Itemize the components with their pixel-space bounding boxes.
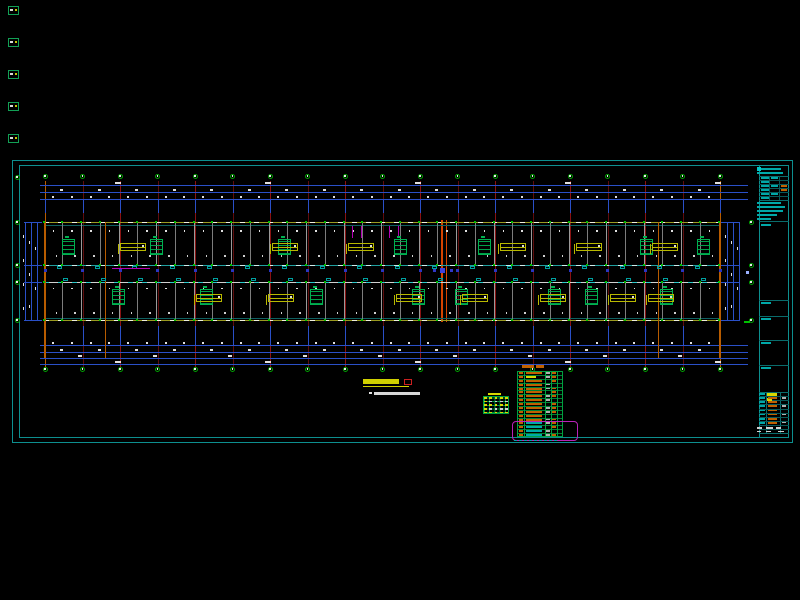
dim-text [671,342,673,344]
dimension-line [31,222,32,320]
partition-wall [231,223,232,264]
dim-text [415,182,421,184]
partition-wall [569,223,570,264]
legend-cell-text [495,397,498,399]
door-swing-mark [352,226,353,238]
cad-drawing-canvas[interactable] [0,0,800,600]
table-caption-text [514,440,558,442]
room-label [109,288,111,290]
partition-wall [644,283,645,319]
room-label [240,288,242,290]
schedule-cell-text [519,399,523,401]
junction-dot [436,221,438,223]
titleblock-logo-icon [757,167,761,171]
grid-bubble-dot [607,368,609,370]
door-glyph [245,266,250,269]
dim-text [315,342,317,344]
schedule-cell-text [552,376,556,378]
room-label [487,312,489,314]
stray-block-mark [15,73,17,75]
grid-bubble-dot [419,368,421,370]
junction-dot [493,319,495,321]
junction-dot [193,281,195,283]
room-label [578,288,580,290]
dim-text [678,355,682,357]
junction-dot [286,319,288,321]
door-glyph [588,278,593,281]
bench-mark [142,245,144,247]
dimension-line [40,192,748,193]
room-label [318,255,320,257]
dim-text [183,342,185,344]
titleblock-note-text [757,202,781,204]
dim-extension [420,326,421,345]
legend-cell-text [495,412,498,414]
dim-text [23,283,25,286]
junction-dot [605,319,607,321]
dim-extension [195,199,196,213]
dim-text [615,342,617,344]
junction-dot [305,281,307,283]
dim-text [323,349,326,351]
schedule-title [522,365,534,368]
room-label [90,288,92,290]
titleblock-footer-text [778,431,784,433]
dim-text [315,196,317,198]
schedule-cell-text [526,399,542,401]
schedule-cell-text [526,415,542,417]
dim-text [135,349,138,351]
grid-bubble-dot [119,175,121,177]
grid-bubble-dot [457,368,459,370]
titleblock-bt-text [759,418,765,420]
room-label [581,312,583,314]
legend-cell-text [489,397,492,399]
stray-block-icon [8,102,19,111]
legend-cell-text [505,404,508,406]
schedule-cell-text [552,395,556,397]
room-label [390,230,392,232]
bench-fixture-line [121,247,145,248]
schedule-cell-text [519,415,523,417]
room-label [428,230,430,232]
junction-dot [361,281,363,283]
junction-dot [361,319,363,321]
titleblock-mini-text [771,177,778,179]
stair-label [397,236,401,238]
bench-fixture-leg [646,295,647,305]
junction-dot [193,264,195,266]
door-glyph [288,278,293,281]
room-label [334,288,336,290]
room-label [712,255,714,257]
titleblock-bt-text [768,405,777,407]
partition-wall [325,283,326,319]
corridor-mark [119,269,122,272]
dim-text [29,273,31,276]
bench-fixture-leg [650,244,651,254]
junction-dot [380,319,382,321]
dim-text [35,287,37,290]
room-label [449,255,451,257]
titleblock-footer-text [757,431,761,433]
dim-text [333,196,335,198]
grid-bubble-dot [644,175,646,177]
room-label [184,230,186,232]
room-label [484,288,486,290]
bench-fixture-leg [346,244,347,254]
room-label [243,255,245,257]
junction-dot [680,319,682,321]
dim-text [60,189,63,191]
titleblock-line [759,221,789,222]
bench-mark [294,245,296,247]
schedule-cell-text [526,407,542,409]
row-bubble-dot [750,221,752,223]
unit-wall [105,222,106,358]
junction-dot [380,221,382,223]
partition-wall [231,283,232,319]
row-bubble-dot [750,281,752,283]
stair-label [153,236,157,238]
schedule-cell-text [552,391,556,393]
room-label [74,312,76,314]
room-label [146,230,148,232]
dim-text [731,273,733,276]
legend-cell-text [489,404,492,406]
legend-cell-text [500,397,503,399]
stair-block [310,289,323,305]
schedule-cell-text [519,391,523,393]
schedule-cell-text [546,376,550,378]
schedule-cell-text [526,388,542,390]
schedule-cell-text [546,388,550,390]
junction-dot [286,281,288,283]
dim-text [435,189,438,191]
titleblock-footer-text [766,431,771,433]
dim-extension [720,199,721,213]
door-glyph [282,266,287,269]
bench-fixture-line [501,247,525,248]
legend-cell-text [500,412,503,414]
legend-cell-text [489,401,492,403]
junction-dot [530,319,532,321]
dim-text [633,342,635,344]
grid-bubble-dot [382,368,384,370]
dim-extension [233,199,234,213]
dim-text [265,182,271,184]
junction-dot [268,264,270,266]
junction-dot [624,281,626,283]
dim-text [540,342,542,344]
titleblock-mini-text [761,177,769,179]
junction-dot [474,281,476,283]
bench-mark [370,245,372,247]
junction-dot [680,264,682,266]
junction-dot [699,319,701,321]
partition-wall [606,283,607,319]
junction-dot [230,281,232,283]
junction-dot [399,281,401,283]
bench-mark [562,296,564,298]
dim-text [248,189,251,191]
room-label [693,312,695,314]
stair-block [150,239,163,255]
junction-dot [155,264,157,266]
dim-extension [645,199,646,213]
dim-text [731,241,733,244]
legend-cell-text [505,412,508,414]
junction-dot [643,281,645,283]
junction-dot [511,281,513,283]
dim-text [360,189,363,191]
door-glyph [476,278,481,281]
room-label [93,255,95,257]
legend-cell-text [489,412,492,414]
dimension-line [40,364,748,365]
junction-dot [230,221,232,223]
schedule-cell-text [519,380,523,382]
room-label [262,312,264,314]
door-glyph [507,266,512,269]
legend-cell-text [495,404,498,406]
room-label [131,312,133,314]
dim-text [127,342,129,344]
dim-text [285,349,288,351]
dim-text [603,355,607,357]
corridor-mark [531,269,534,272]
dim-text [35,247,37,250]
titleblock-mini-col [779,176,780,200]
junction-dot [680,221,682,223]
dim-text [540,196,542,198]
dim-text [652,196,654,198]
titleblock-note-text [757,214,777,216]
partition-wall [81,283,82,319]
room-label [599,312,601,314]
dim-text [228,355,232,357]
dim-text [115,182,121,184]
dim-text [71,342,73,344]
dim-text [221,196,223,198]
partition-wall [606,223,607,264]
room-label [296,230,298,232]
legend-cell-text [505,408,508,410]
schedule-cell-text [526,395,542,397]
room-label [596,230,598,232]
row-bubble-dot [16,221,18,223]
bench-fixture-line [649,298,673,299]
legend-table-title [488,393,501,396]
room-label [618,312,620,314]
junction-dot [455,264,457,266]
dim-text [23,259,25,262]
axis-label [744,321,750,323]
dim-text [521,196,523,198]
door-glyph [513,278,518,281]
bench-mark [290,296,292,298]
dim-text [548,189,551,191]
junction-dot [43,221,45,223]
room-label [412,255,414,257]
junction-dot [493,221,495,223]
dim-extension [308,326,309,345]
room-label [446,230,448,232]
dim-text [296,196,298,198]
grid-bubble-dot [682,175,684,177]
dim-text [446,342,448,344]
room-label [656,312,658,314]
room-label [671,230,673,232]
dim-text [502,196,504,198]
legend-cell-text [484,397,487,399]
room-label [521,288,523,290]
dim-text [483,342,485,344]
junction-dot [530,221,532,223]
dim-text [548,349,551,351]
room-label [146,288,148,290]
dim-text [98,189,101,191]
titleblock-mini-text [761,193,769,195]
junction-dot [249,281,251,283]
dim-text [725,307,727,310]
room-label [318,312,320,314]
room-label [109,230,111,232]
schedule-cell-text [552,407,556,409]
junction-dot [661,221,663,223]
partition-wall [381,223,382,264]
partition-wall [381,283,382,319]
junction-dot [455,221,457,223]
door-glyph [138,278,143,281]
junction-dot [61,281,63,283]
junction-dot [455,319,457,321]
room-label [337,312,339,314]
partition-wall [700,283,701,319]
partition-wall [250,223,251,264]
junction-dot [80,221,82,223]
dim-text [623,189,626,191]
stray-block-mark [10,73,13,75]
bench-fixture-leg [460,295,461,305]
drawing-title-text [363,379,399,384]
room-label [184,288,186,290]
stair-label [663,286,667,288]
junction-dot [118,281,120,283]
room-label [506,255,508,257]
grid-bubble-dot [157,368,159,370]
titleblock-cell-label [761,224,771,226]
titleblock-bt-text [782,414,786,416]
bench-fixture-leg [394,295,395,305]
schedule-row-line [517,375,563,376]
dim-extension [720,222,740,223]
dim-text [127,196,129,198]
bench-fixture-leg [194,295,195,305]
room-label [206,255,208,257]
junction-dot [343,221,345,223]
dim-text [698,189,701,191]
dim-extension [458,199,459,213]
legend-cell-text [500,404,503,406]
dim-text [371,196,373,198]
titleblock-mini-text [771,193,778,195]
room-label [503,230,505,232]
room-label [168,255,170,257]
dim-text [725,283,727,286]
room-label [243,312,245,314]
room-label [128,288,130,290]
room-label [637,312,639,314]
dim-text [173,349,176,351]
dim-text [210,349,213,351]
room-label [337,255,339,257]
titleblock-bt-text [759,393,765,395]
dim-extension [720,320,740,321]
partition-wall [437,223,438,264]
dim-text [398,349,401,351]
room-label [131,255,133,257]
titleblock-cell-label [761,318,771,320]
door-glyph [63,278,68,281]
room-label [224,312,226,314]
dim-text [173,189,176,191]
schedule-cell-text [546,411,550,413]
corridor-mark [81,269,84,272]
partition-wall [344,223,345,264]
dim-text [510,189,513,191]
legend-cell-text [484,408,487,410]
junction-dot [136,281,138,283]
corridor-mark [419,269,422,272]
room-label [409,288,411,290]
dim-extension [83,326,84,345]
room-label [578,230,580,232]
dim-text [652,342,654,344]
room-label [299,255,301,257]
titleblock-footer-text [766,427,773,429]
room-label [374,312,376,314]
dim-text [146,342,148,344]
room-label [653,288,655,290]
grid-bubble-dot [269,368,271,370]
grid-bubble-dot [719,368,721,370]
dim-extension [345,199,346,213]
dim-extension [683,199,684,213]
room-label [428,288,430,290]
junction-dot [586,281,588,283]
room-label [615,288,617,290]
junction-dot [474,221,476,223]
room-label [278,288,280,290]
dim-text [23,235,25,238]
dim-text [98,349,101,351]
stray-block-icon [8,6,19,15]
stair-label [281,236,285,238]
junction-dot [80,281,82,283]
room-label [281,312,283,314]
legend-cell-text [489,408,492,410]
schedule-cell-text [546,407,550,409]
corridor-mark [156,269,159,272]
dim-text [71,196,73,198]
room-label [709,288,711,290]
junction-dot [493,264,495,266]
room-label [371,288,373,290]
room-label [334,230,336,232]
row-bubble-dot [16,281,18,283]
dim-text [690,342,692,344]
